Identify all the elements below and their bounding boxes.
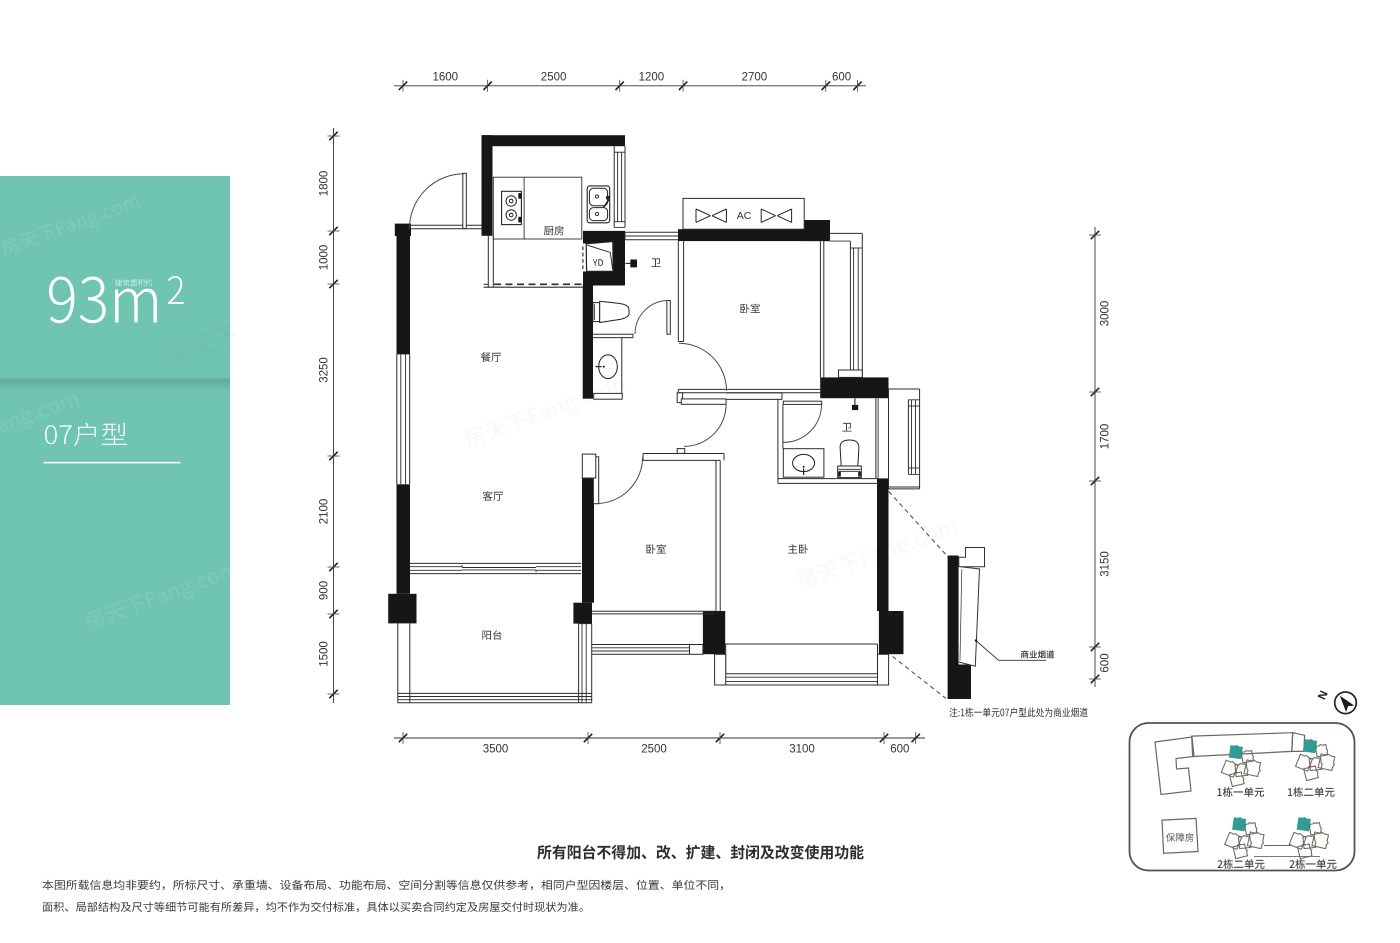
svg-text:2500: 2500 [641, 744, 667, 756]
svg-text:1500: 1500 [319, 641, 331, 667]
svg-text:2700: 2700 [742, 72, 768, 84]
svg-text:N: N [1316, 689, 1330, 702]
svg-text:1800: 1800 [319, 171, 331, 197]
svg-text:600: 600 [1100, 653, 1112, 672]
svg-text:3500: 3500 [483, 744, 509, 756]
svg-text:1600: 1600 [433, 72, 459, 84]
svg-text:3000: 3000 [1100, 301, 1112, 327]
svg-text:3250: 3250 [319, 357, 331, 383]
svg-text:1000: 1000 [319, 245, 331, 271]
svg-text:600: 600 [832, 72, 851, 84]
svg-text:900: 900 [319, 581, 331, 600]
svg-text:600: 600 [890, 744, 909, 756]
svg-text:AC: AC [737, 210, 752, 222]
svg-text:3150: 3150 [1100, 551, 1112, 577]
svg-text:1200: 1200 [639, 72, 665, 84]
svg-text:3100: 3100 [789, 744, 815, 756]
svg-text:2100: 2100 [319, 499, 331, 525]
svg-text:2500: 2500 [541, 72, 567, 84]
svg-text:1700: 1700 [1100, 424, 1112, 450]
